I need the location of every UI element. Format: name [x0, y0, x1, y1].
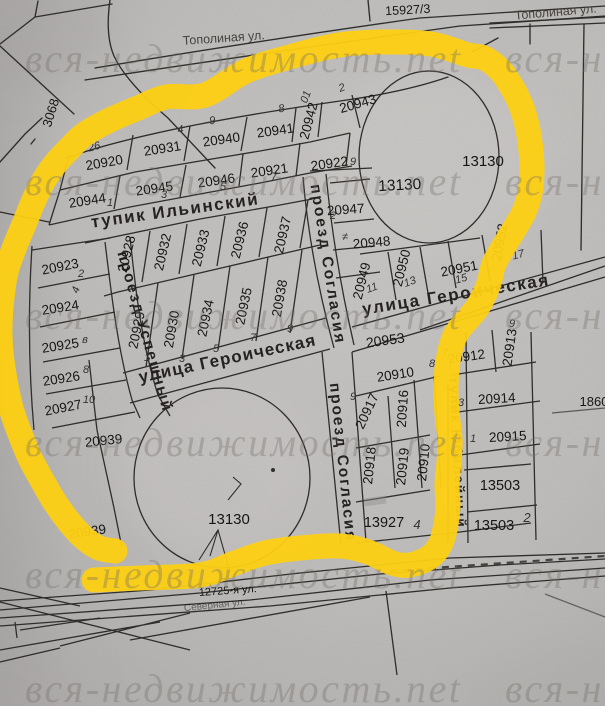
svg-text:вся-недвижимость.net: вся-недвижимость.net	[505, 36, 605, 81]
svg-text:8: 8	[83, 364, 90, 376]
svg-text:вся-недвижимость.net: вся-недвижимость.net	[25, 666, 461, 706]
svg-text:вся-недвижимость.net: вся-недвижимость.net	[25, 420, 461, 465]
svg-text:1: 1	[470, 433, 476, 445]
svg-text:13927: 13927	[364, 515, 404, 531]
svg-text:вся-недвижимость.net: вся-недвижимость.net	[25, 36, 461, 81]
svg-text:вся-недвижимость.net: вся-недвижимость.net	[505, 159, 605, 204]
svg-text:1860: 1860	[580, 394, 605, 409]
svg-text:5: 5	[213, 343, 220, 355]
svg-text:15927/3: 15927/3	[385, 2, 431, 18]
svg-text:13130: 13130	[462, 153, 504, 170]
svg-text:13130: 13130	[208, 511, 250, 528]
svg-text:20914: 20914	[478, 390, 517, 407]
svg-text:4: 4	[413, 517, 420, 532]
svg-text:3: 3	[179, 353, 186, 365]
svg-text:вся-недвижимость.net: вся-недвижимость.net	[25, 552, 461, 597]
svg-text:2: 2	[522, 510, 531, 525]
svg-text:≠: ≠	[342, 231, 348, 243]
svg-text:2: 2	[77, 268, 84, 280]
svg-text:вся-недвижимость.net: вся-недвижимость.net	[505, 420, 605, 465]
svg-text:2: 2	[329, 210, 336, 222]
svg-text:вся-недвижимость.net: вся-недвижимость.net	[505, 293, 605, 338]
svg-text:10: 10	[83, 394, 96, 406]
svg-text:вся-недвижимость.net: вся-недвижимость.net	[505, 666, 605, 706]
svg-text:13503: 13503	[474, 518, 514, 534]
svg-text:вся-недвижимость.net: вся-недвижимость.net	[25, 159, 461, 204]
svg-text:13503: 13503	[480, 478, 520, 494]
svg-text:вся-недвижимость.net: вся-недвижимость.net	[25, 293, 461, 338]
svg-text:9: 9	[350, 391, 356, 403]
svg-text:1: 1	[144, 352, 150, 364]
svg-text:вся-недвижимость.net: вся-недвижимость.net	[505, 552, 605, 597]
